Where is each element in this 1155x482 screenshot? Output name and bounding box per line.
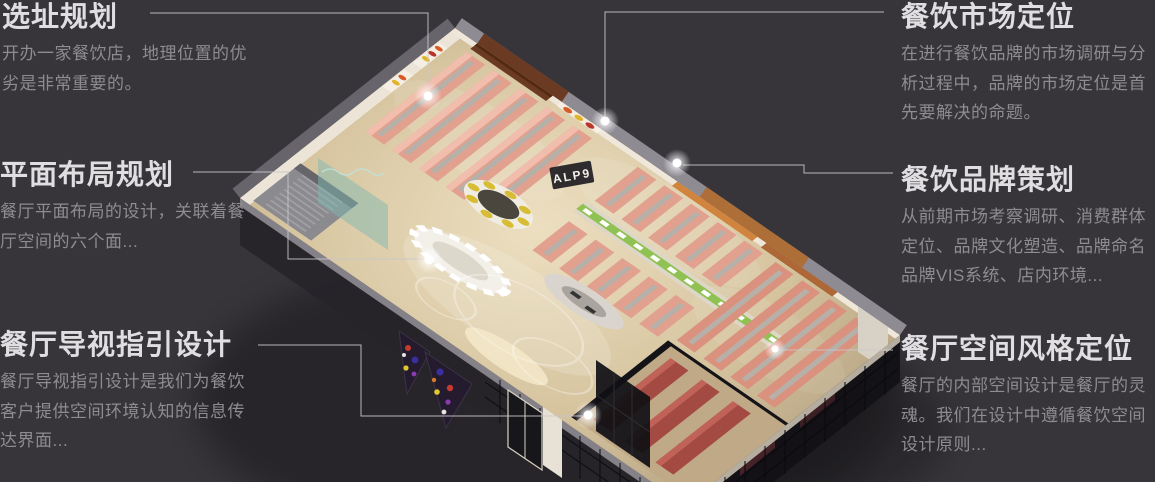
callout-signage-design: 餐厅导视指引设计 餐厅导视指引设计是我们为餐饮客户提供空间环境认知的信息传达界面… — [0, 328, 252, 456]
callout-title: 餐饮品牌策划 — [901, 163, 1153, 197]
callout-body: 餐厅导视指引设计是我们为餐饮客户提供空间环境认知的信息传达界面... — [0, 367, 252, 456]
callout-brand-planning: 餐饮品牌策划 从前期市场考察调研、消费群体定位、品牌文化塑造、品牌命名品牌VIS… — [901, 163, 1153, 291]
page: ALP9 选址规划 开办一家餐饮店，地理位置的优劣是非常重要的。 平面布局规划 … — [0, 0, 1155, 482]
callout-body: 餐厅的内部空间设计是餐厅的灵魂。我们在设计中遵循餐饮空间设计原则... — [901, 371, 1153, 460]
callout-space-style: 餐厅空间风格定位 餐厅的内部空间设计是餐厅的灵魂。我们在设计中遵循餐饮空间设计原… — [901, 332, 1153, 460]
callout-body: 在进行餐饮品牌的市场调研与分析过程中，品牌的市场定位是首先要解决的命题。 — [901, 39, 1153, 128]
callout-site-selection: 选址规划 开办一家餐饮店，地理位置的优劣是非常重要的。 — [2, 0, 254, 98]
callout-title: 餐饮市场定位 — [901, 0, 1153, 34]
callout-title: 平面布局规划 — [0, 158, 252, 192]
connector-brand-planning — [683, 165, 893, 173]
callout-title: 选址规划 — [2, 0, 254, 34]
callout-body: 开办一家餐饮店，地理位置的优劣是非常重要的。 — [2, 39, 254, 98]
callout-title: 餐厅导视指引设计 — [0, 328, 252, 362]
callout-market-positioning: 餐饮市场定位 在进行餐饮品牌的市场调研与分析过程中，品牌的市场定位是首先要解决的… — [901, 0, 1153, 128]
connector-market-positioning — [605, 12, 884, 116]
callout-layout-planning: 平面布局规划 餐厅平面布局的设计，关联着餐厅空间的六个面... — [0, 158, 252, 256]
callout-body: 从前期市场考察调研、消费群体定位、品牌文化塑造、品牌命名品牌VIS系统、店内环境… — [901, 202, 1153, 291]
callout-title: 餐厅空间风格定位 — [901, 332, 1153, 366]
callout-body: 餐厅平面布局的设计，关联着餐厅空间的六个面... — [0, 197, 252, 256]
